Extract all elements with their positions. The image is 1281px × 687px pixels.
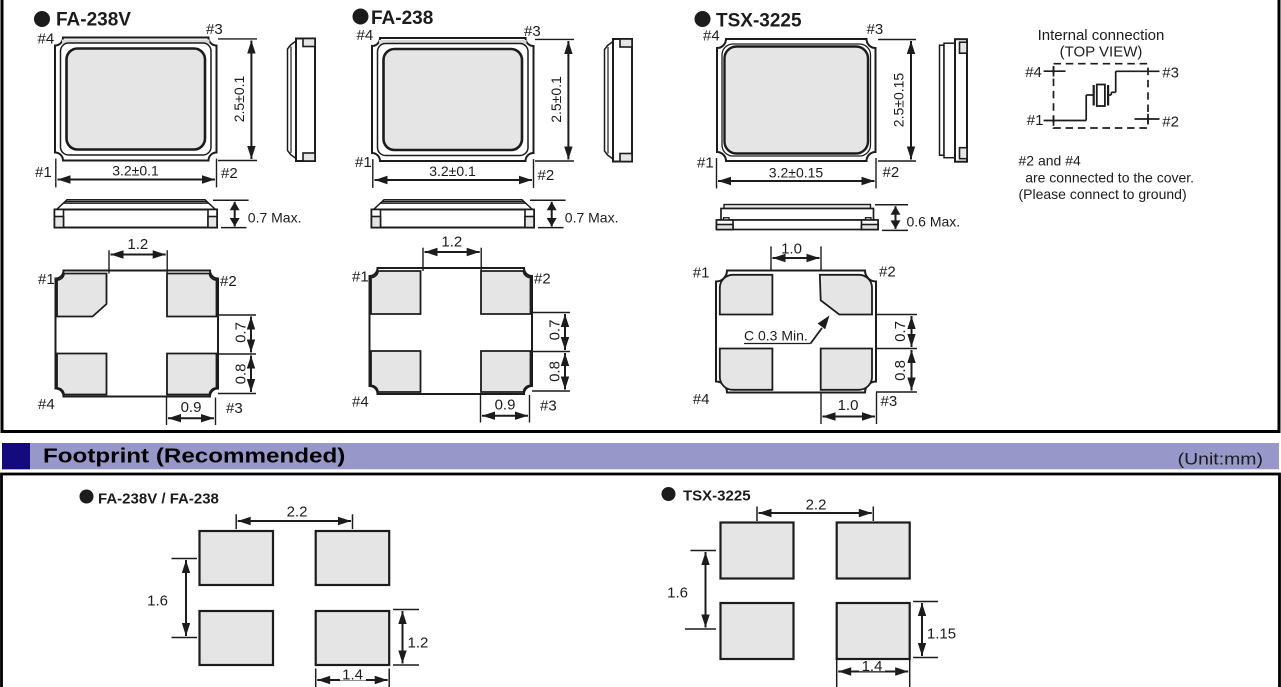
- svg-text:1.0: 1.0: [781, 241, 802, 258]
- svg-text:2.2: 2.2: [287, 504, 308, 521]
- svg-text:0.7: 0.7: [233, 322, 250, 343]
- svg-text:#1: #1: [352, 269, 369, 286]
- svg-text:1.2: 1.2: [127, 236, 148, 253]
- svg-text:#2: #2: [879, 264, 896, 281]
- svg-text:#3: #3: [226, 400, 243, 417]
- svg-text:2.5±0.15: 2.5±0.15: [891, 73, 907, 128]
- svg-text:Footprint (Recommended): Footprint (Recommended): [43, 444, 345, 467]
- svg-text:#1: #1: [693, 265, 710, 282]
- svg-text:(Unit:mm): (Unit:mm): [1178, 449, 1263, 469]
- svg-text:0.8: 0.8: [892, 360, 909, 381]
- svg-text:#4: #4: [703, 28, 720, 45]
- svg-text:0.8: 0.8: [547, 361, 564, 382]
- svg-text:#3: #3: [206, 21, 223, 38]
- svg-text:#3: #3: [867, 21, 884, 38]
- svg-text:2.5±0.1: 2.5±0.1: [231, 75, 247, 122]
- svg-text:C 0.3 Min.: C 0.3 Min.: [744, 328, 808, 344]
- svg-text:#1: #1: [1027, 112, 1044, 129]
- svg-text:#3: #3: [524, 23, 541, 40]
- svg-text:are connected to the cover.: are connected to the cover.: [1025, 169, 1194, 185]
- svg-text:0.7 Max.: 0.7 Max.: [248, 209, 302, 225]
- svg-text:1.6: 1.6: [147, 593, 168, 610]
- svg-text:FA-238V / FA-238: FA-238V / FA-238: [98, 491, 219, 508]
- svg-text:#2: #2: [883, 164, 900, 181]
- svg-text:#2: #2: [221, 165, 238, 182]
- svg-text:0.9: 0.9: [495, 396, 516, 413]
- svg-text:3.2±0.1: 3.2±0.1: [112, 163, 159, 179]
- svg-text:#1: #1: [697, 155, 714, 172]
- svg-text:#4: #4: [357, 27, 374, 44]
- svg-text:#2: #2: [1162, 114, 1179, 131]
- svg-text:#1: #1: [355, 154, 372, 171]
- svg-text:#1: #1: [35, 164, 52, 181]
- svg-text:#3: #3: [540, 398, 557, 415]
- svg-text:1.4: 1.4: [862, 658, 883, 675]
- svg-text:#4: #4: [693, 391, 710, 408]
- svg-text:1.2: 1.2: [441, 233, 462, 250]
- svg-text:#2: #2: [534, 271, 551, 288]
- svg-text:1.2: 1.2: [408, 635, 429, 652]
- svg-text:#1: #1: [38, 271, 55, 288]
- svg-text:0.8: 0.8: [233, 364, 250, 385]
- svg-text:0.7: 0.7: [547, 320, 564, 341]
- svg-text:(Please connect to ground): (Please connect to ground): [1019, 186, 1187, 202]
- svg-text:1.0: 1.0: [838, 397, 859, 414]
- svg-text:FA-238: FA-238: [371, 8, 433, 29]
- svg-text:#4: #4: [38, 396, 55, 413]
- svg-text:(TOP VIEW): (TOP VIEW): [1060, 44, 1143, 61]
- svg-text:0.9: 0.9: [181, 399, 202, 416]
- svg-text:TSX-3225: TSX-3225: [716, 11, 802, 32]
- svg-text:#4: #4: [38, 31, 55, 48]
- svg-text:#4: #4: [1025, 64, 1042, 81]
- svg-text:#3: #3: [881, 393, 898, 410]
- svg-text:1.4: 1.4: [342, 667, 363, 684]
- svg-text:TSX-3225: TSX-3225: [683, 488, 751, 505]
- svg-text:2.5±0.1: 2.5±0.1: [548, 76, 564, 123]
- svg-text:Internal connection: Internal connection: [1038, 27, 1165, 44]
- svg-text:3.2±0.15: 3.2±0.15: [769, 165, 824, 181]
- svg-text:FA-238V: FA-238V: [56, 10, 131, 31]
- svg-text:#3: #3: [1162, 65, 1179, 82]
- svg-text:1.6: 1.6: [667, 585, 688, 602]
- svg-text:0.6 Max.: 0.6 Max.: [907, 214, 961, 230]
- svg-text:3.2±0.1: 3.2±0.1: [429, 163, 476, 179]
- svg-text:0.7 Max.: 0.7 Max.: [565, 209, 619, 225]
- svg-text:0.7: 0.7: [892, 321, 909, 342]
- svg-text:#4: #4: [352, 394, 369, 411]
- svg-text:#2 and #4: #2 and #4: [1019, 153, 1081, 169]
- svg-text:2.2: 2.2: [806, 497, 827, 514]
- svg-text:#2: #2: [220, 273, 237, 290]
- svg-text:1.15: 1.15: [927, 626, 956, 643]
- svg-text:#2: #2: [538, 167, 555, 184]
